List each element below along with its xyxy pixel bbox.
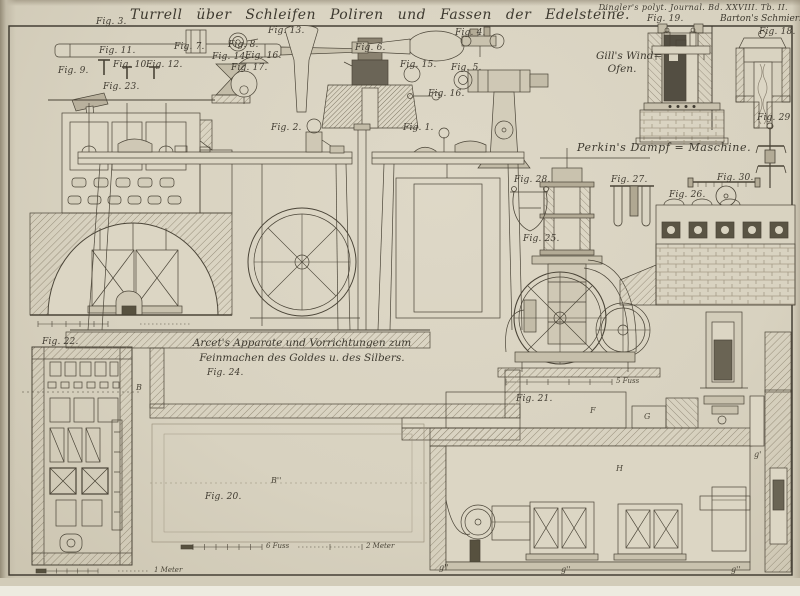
figure-label: Fig. 27. xyxy=(611,175,648,185)
figure-label: Fig. 24. xyxy=(207,368,244,378)
figure-label: Fig. 11. xyxy=(99,46,136,56)
fig22-plan-drawing xyxy=(22,347,150,574)
gills-wind-ofen-drawing xyxy=(636,24,728,144)
figure-label: Fig. 20. xyxy=(205,492,242,502)
section-title-arcet: Arcet's Apparate und Vorrichtungen zum F… xyxy=(172,336,432,366)
fig23-furnace-drawing xyxy=(30,100,232,327)
figure-label: Fig. 21. xyxy=(516,394,553,404)
letter-annotation: g' xyxy=(754,450,761,459)
letter-annotation: F xyxy=(590,406,596,415)
gill-line2: Ofen. xyxy=(596,63,648,76)
figure-label: Fig. 16. xyxy=(428,89,465,99)
letter-annotation: H xyxy=(616,464,623,473)
letter-annotation: B xyxy=(136,383,142,392)
figure-label: Fig. 12. xyxy=(146,60,183,70)
scale-label-meter: 2 Meter xyxy=(366,542,394,550)
letter-annotation: B'' xyxy=(271,476,281,485)
figure-label: Fig. 19. xyxy=(647,14,684,24)
figure-label: Fig. 9. xyxy=(58,66,89,76)
scale-label-fuss: 6 Fuss xyxy=(266,542,289,550)
letter-annotation: g'' xyxy=(561,565,571,574)
figure-label: Fig. 26. xyxy=(669,190,706,200)
letter-annotation: g'' xyxy=(439,563,449,572)
figure-label: Fig. 10. xyxy=(113,60,150,70)
figure-label: Fig. 1. xyxy=(403,123,434,133)
figure-label: Fig. 6. xyxy=(355,43,386,53)
figure-label: Fig. 7. xyxy=(174,42,205,52)
figure-label: Fig. 14. xyxy=(212,52,249,62)
section-title-perkin: Perkin's Dampf = Maschine. xyxy=(577,141,751,154)
figure-label: Fig. 23. xyxy=(103,82,140,92)
gill-line1: Gill's Wind= xyxy=(596,50,648,63)
figure-label: Fig. 8. xyxy=(228,40,259,50)
arcet-line1: Arcet's Apparate und Vorrichtungen zum xyxy=(172,336,432,351)
figure-label: Fig. 30. xyxy=(717,173,754,183)
scale-label-fuss5: 5 Fuss xyxy=(616,377,639,385)
scale-label-meter1: 1 Meter xyxy=(154,566,182,574)
figure-label: Fig. 25. xyxy=(523,234,560,244)
letter-annotation: G xyxy=(644,412,650,421)
arcet-line2: Feinmachen des Goldes u. des Silbers. xyxy=(172,351,432,366)
figure-label: Fig. 4. xyxy=(455,28,486,38)
figure-label: Fig. 16. xyxy=(245,51,282,61)
figure-label: Fig. 17. xyxy=(231,63,268,73)
figure-label: Fig. 5. xyxy=(451,63,482,73)
section-title-gill: Gill's Wind= Ofen. xyxy=(596,50,648,76)
figure-label: Fig. 22. xyxy=(42,337,79,347)
figure-label: Fig. 18. xyxy=(759,27,796,37)
engraving-plate: Dingler's polyt. Journal. Bd. XXVIII. Tb… xyxy=(0,0,800,596)
figure-label: Fig. 29. xyxy=(757,113,794,123)
scan-margin-strip xyxy=(0,586,800,596)
figure-label: Fig. 2. xyxy=(271,123,302,133)
fig20-plan-drawing xyxy=(150,424,430,542)
figure-label: Fig. 28. xyxy=(514,175,551,185)
figure-label: Fig. 15. xyxy=(400,60,437,70)
figure-label: Fig. 13. xyxy=(268,26,305,36)
plate-title: Turrell über Schleifen Poliren und Fasse… xyxy=(130,7,590,23)
figure-label: Fig. 3. xyxy=(96,17,127,27)
section-title-barton: Barton's Schmierbüchsen. xyxy=(720,14,800,24)
paper-edge-strip xyxy=(0,578,800,586)
letter-annotation: g'' xyxy=(731,565,741,574)
